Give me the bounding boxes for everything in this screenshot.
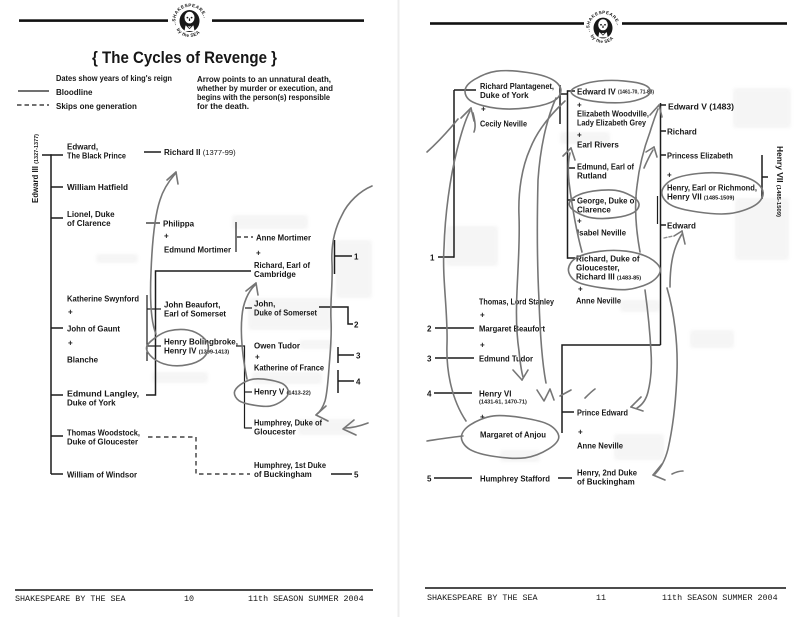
- svg-text:10: 10: [184, 594, 194, 604]
- svg-text:of Buckingham: of Buckingham: [254, 470, 312, 479]
- svg-text:+: +: [164, 232, 169, 241]
- svg-text:Edmund Tudor: Edmund Tudor: [479, 354, 533, 363]
- svg-text:Richard Plantagenet,: Richard Plantagenet,: [480, 82, 554, 91]
- svg-text:Anne Neville: Anne Neville: [577, 441, 624, 450]
- svg-text:1: 1: [430, 254, 435, 263]
- svg-text:George, Duke of: George, Duke of: [577, 196, 637, 205]
- svg-text:Edward,: Edward,: [67, 143, 98, 152]
- svg-text:Cambridge: Cambridge: [254, 270, 296, 279]
- svg-text:11th SEASON SUMMER 2004: 11th SEASON SUMMER 2004: [248, 594, 364, 604]
- svg-text:+: +: [256, 248, 261, 257]
- svg-text:Dates show years of king's rei: Dates show years of king's reign: [56, 74, 172, 83]
- svg-text:Elizabeth Woodville,: Elizabeth Woodville,: [577, 109, 649, 118]
- svg-text:Lady Elizabeth Grey: Lady Elizabeth Grey: [577, 119, 646, 128]
- svg-text:+: +: [480, 310, 485, 319]
- svg-text:SHAKESPEARE BY THE SEA: SHAKESPEARE BY THE SEA: [15, 594, 127, 604]
- svg-text:Isabel Neville: Isabel Neville: [577, 228, 627, 237]
- svg-text:William of Windsor: William of Windsor: [67, 470, 137, 479]
- svg-text:Arrow points to an unnatural d: Arrow points to an unnatural death,: [197, 75, 331, 84]
- svg-text:+: +: [577, 130, 582, 139]
- svg-text:begins with the person(s) resp: begins with the person(s) responsible: [197, 93, 330, 102]
- svg-text:of Buckingham: of Buckingham: [577, 478, 635, 487]
- svg-text:Margaret Beaufort: Margaret Beaufort: [479, 324, 545, 333]
- svg-text:Earl of Somerset: Earl of Somerset: [164, 310, 226, 319]
- svg-text:2: 2: [427, 325, 432, 334]
- svg-text:1: 1: [354, 253, 359, 262]
- svg-text:{ The Cycles of Revenge }: { The Cycles of Revenge }: [92, 49, 278, 67]
- svg-text:Edward V (1483): Edward V (1483): [668, 103, 734, 112]
- svg-text:John,: John,: [254, 299, 275, 308]
- svg-text:Richard, Duke of: Richard, Duke of: [576, 254, 640, 263]
- svg-text:Richard II (1377-99): Richard II (1377-99): [164, 148, 236, 157]
- svg-text:Philippa: Philippa: [163, 219, 195, 228]
- svg-text:Duke of Gloucester: Duke of Gloucester: [67, 438, 138, 447]
- svg-text:whether by murder or execution: whether by murder or execution, and: [196, 84, 333, 93]
- svg-text:Gloucester,: Gloucester,: [576, 264, 620, 273]
- svg-text:Henry Bolingbroke,: Henry Bolingbroke,: [164, 337, 238, 346]
- svg-text:Henry, Earl or Richmond,: Henry, Earl or Richmond,: [667, 183, 757, 192]
- svg-text:William Hatfield: William Hatfield: [67, 183, 128, 192]
- svg-text:Duke of Somerset: Duke of Somerset: [254, 309, 317, 318]
- svg-text:Edmund, Earl of: Edmund, Earl of: [577, 162, 634, 171]
- svg-text:Gloucester: Gloucester: [254, 428, 296, 437]
- svg-text:John Beaufort,: John Beaufort,: [164, 300, 220, 309]
- svg-text:Humphrey, 1st Duke: Humphrey, 1st Duke: [254, 461, 327, 470]
- svg-text:(1431-61, 1470-71): (1431-61, 1470-71): [479, 400, 527, 406]
- svg-text:Edmund Langley,: Edmund Langley,: [67, 389, 139, 398]
- svg-text:Rutland: Rutland: [577, 172, 607, 181]
- svg-text:+: +: [480, 340, 485, 349]
- svg-text:3: 3: [356, 352, 361, 361]
- svg-text:4: 4: [356, 378, 361, 387]
- svg-text:Humphrey Stafford: Humphrey Stafford: [480, 474, 550, 483]
- svg-text:+: +: [578, 284, 583, 293]
- svg-text:+: +: [68, 308, 73, 317]
- svg-text:Katherine of France: Katherine of France: [254, 363, 325, 372]
- svg-text:Anne Neville: Anne Neville: [576, 296, 622, 305]
- svg-text:Clarence: Clarence: [577, 206, 611, 215]
- svg-text:of Clarence: of Clarence: [67, 219, 111, 228]
- svg-text:+: +: [68, 339, 73, 348]
- svg-text:Humphrey, Duke of: Humphrey, Duke of: [254, 418, 322, 427]
- svg-text:5: 5: [427, 475, 432, 484]
- svg-text:Henry VI: Henry VI: [479, 390, 511, 399]
- svg-text:2: 2: [354, 321, 359, 330]
- svg-text:Duke of York: Duke of York: [480, 91, 529, 100]
- svg-text:Henry, 2nd Duke: Henry, 2nd Duke: [577, 468, 638, 477]
- svg-text:Edmund Mortimer: Edmund Mortimer: [164, 245, 231, 254]
- svg-text:Edward IV: Edward IV: [577, 88, 616, 97]
- svg-text:4: 4: [427, 390, 432, 399]
- svg-text:Edward: Edward: [667, 221, 696, 230]
- svg-text:Princess Elizabeth: Princess Elizabeth: [667, 151, 733, 160]
- svg-text:11th SEASON SUMMER 2004: 11th SEASON SUMMER 2004: [662, 593, 778, 603]
- svg-text:5: 5: [354, 471, 359, 480]
- svg-text:Bloodline: Bloodline: [56, 88, 93, 97]
- svg-text:Prince Edward: Prince Edward: [577, 408, 628, 417]
- svg-text:Earl Rivers: Earl Rivers: [577, 140, 619, 149]
- svg-text:Richard: Richard: [667, 127, 697, 136]
- svg-text:+: +: [667, 170, 672, 179]
- svg-text:Duke of York: Duke of York: [67, 399, 116, 408]
- svg-text:John of Gaunt: John of Gaunt: [67, 324, 120, 333]
- svg-text:Skips one generation: Skips one generation: [56, 102, 137, 111]
- svg-text:+: +: [577, 100, 582, 109]
- svg-text:+: +: [578, 427, 583, 436]
- svg-text:Owen Tudor: Owen Tudor: [254, 341, 300, 350]
- svg-text:for the death.: for the death.: [197, 102, 249, 111]
- svg-text:+: +: [255, 353, 260, 362]
- svg-text:11: 11: [596, 593, 606, 603]
- svg-text:SHAKESPEARE BY THE SEA: SHAKESPEARE BY THE SEA: [427, 593, 539, 603]
- svg-text:3: 3: [427, 355, 432, 364]
- svg-text:Margaret of Anjou: Margaret of Anjou: [480, 430, 546, 439]
- svg-text:Katherine Swynford: Katherine Swynford: [67, 294, 139, 303]
- svg-text:Anne Mortimer: Anne Mortimer: [256, 233, 311, 242]
- svg-text:The Black Prince: The Black Prince: [67, 152, 126, 161]
- svg-text:Lionel, Duke: Lionel, Duke: [67, 210, 115, 219]
- svg-text:Cecily Neville: Cecily Neville: [480, 119, 527, 128]
- svg-text:+: +: [577, 216, 582, 225]
- svg-text:Richard, Earl of: Richard, Earl of: [254, 261, 310, 270]
- svg-text:Thomas Woodstock,: Thomas Woodstock,: [67, 428, 140, 437]
- svg-text:Blanche: Blanche: [67, 355, 99, 364]
